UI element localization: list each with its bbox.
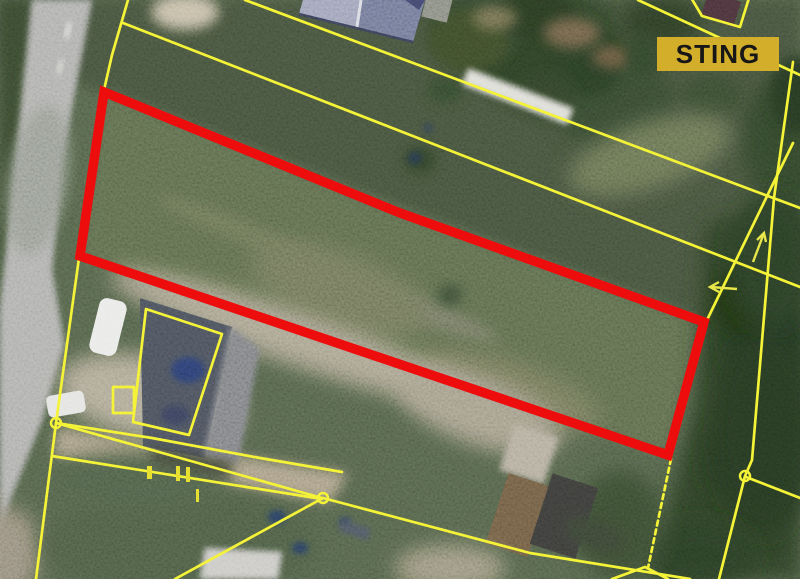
svg-text:STING: STING <box>676 39 760 69</box>
